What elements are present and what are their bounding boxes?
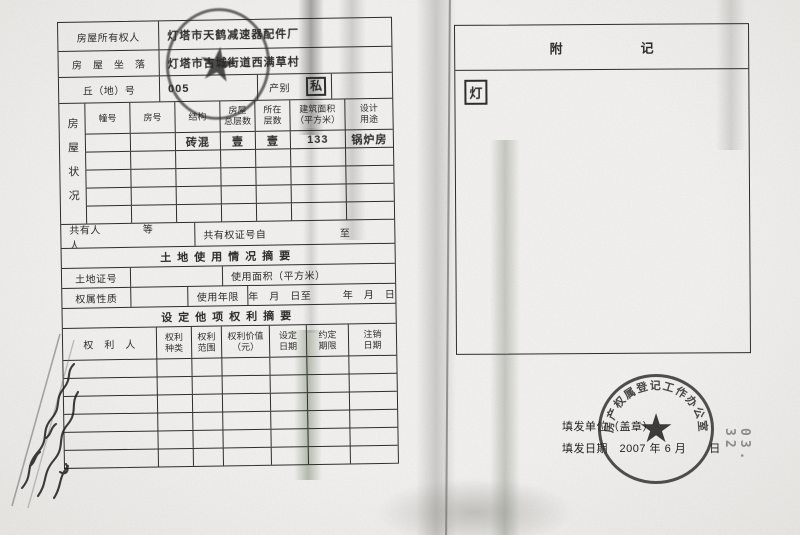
empty-cell	[331, 73, 392, 99]
empty-cell	[307, 374, 349, 392]
empty-cell	[222, 394, 270, 412]
remark-character-stamp: 灯	[464, 80, 487, 105]
empty-cell	[255, 149, 290, 167]
empty-cell	[157, 431, 192, 449]
plot-label: 丘（地）号	[59, 76, 159, 103]
empty-cell	[131, 187, 176, 205]
co-owner-right: 共有权证号自 至	[194, 220, 394, 246]
empty-cell	[85, 152, 130, 170]
seal-arc-text-svg: 房产权属登记工作办公室	[601, 377, 711, 481]
empty-cell	[345, 166, 393, 184]
cell-total-floors: 壹	[220, 132, 255, 150]
empty-cell	[221, 186, 256, 204]
empty-cell	[270, 429, 307, 447]
tenure-label: 权属性质	[62, 288, 130, 308]
empty-cell	[307, 410, 349, 428]
col-header: 约定 期限	[306, 324, 348, 356]
land-cert-label: 土地证号	[62, 268, 130, 288]
col-header: 幢号	[84, 103, 129, 134]
empty-cell	[220, 168, 255, 186]
col-header: 所在 层数	[254, 100, 289, 131]
empty-cell	[255, 167, 290, 185]
col-header: 权利价值 （元）	[221, 326, 269, 358]
empty-cell	[269, 357, 306, 375]
empty-cell	[306, 356, 348, 374]
land-area-label: 使用面积（平方米）	[222, 264, 395, 286]
empty-cell	[307, 428, 349, 446]
empty-cell	[86, 206, 131, 224]
empty-cell	[222, 376, 270, 394]
svg-text:房产权属登记工作办公室: 房产权属登记工作办公室	[602, 379, 711, 434]
empty-cell	[158, 449, 193, 467]
tenure-value	[130, 287, 187, 307]
round-seal-issuing-office: 房产权属登记工作办公室 ★	[598, 374, 714, 484]
empty-cell	[176, 204, 221, 222]
cell	[130, 133, 175, 151]
empty-cell	[220, 150, 255, 168]
empty-cell	[193, 448, 223, 465]
col-header: 设定 日期	[269, 325, 306, 357]
star-icon: ★	[194, 38, 241, 89]
cell-area: 133	[290, 130, 345, 148]
empty-cell	[270, 411, 307, 429]
status-grid: 幢号 房号 结构 房屋 总层数 所在 层数 建筑面积 （平方米） 设计 用途 砖…	[84, 99, 394, 224]
empty-cell	[222, 412, 270, 430]
owner-label: 房屋所有权人	[58, 21, 158, 51]
empty-cell	[345, 148, 393, 166]
empty-cell	[192, 430, 222, 447]
address-label: 房 屋 坐 落	[58, 50, 158, 77]
empty-cell	[271, 447, 308, 465]
empty-cell	[256, 203, 291, 221]
empty-cell	[349, 374, 397, 392]
status-side-label: 房屋状况	[59, 104, 86, 224]
empty-cell	[346, 184, 394, 202]
empty-cell	[290, 148, 345, 166]
empty-cell	[130, 169, 175, 187]
empty-cell	[270, 375, 307, 393]
empty-cell	[290, 166, 345, 184]
empty-cell	[175, 150, 220, 168]
empty-cell	[346, 202, 394, 220]
empty-cell	[175, 168, 220, 186]
land-cert-value	[130, 266, 222, 286]
seal-arc-text: 房产权属登记工作办公室	[602, 379, 711, 434]
empty-cell	[191, 358, 221, 375]
empty-cell	[192, 394, 222, 411]
empty-cell	[307, 392, 349, 410]
empty-cell	[85, 170, 130, 188]
empty-cell	[131, 205, 176, 223]
col-header: 权利 种类	[156, 327, 191, 359]
empty-cell	[221, 204, 256, 222]
co-owner-left: 共有人 等 人	[61, 223, 194, 248]
empty-cell	[350, 446, 398, 464]
empty-cell	[192, 412, 222, 429]
category-value-cell: 私	[301, 74, 331, 99]
empty-cell	[270, 393, 307, 411]
col-header: 权利 范围	[191, 326, 221, 357]
col-header: 设计 用途	[344, 99, 392, 130]
rights-header-row: 权 利 人 权利 种类 权利 范围 权利价值 （元） 设定 日期 约定 期限 注…	[63, 323, 396, 360]
cell	[85, 134, 130, 152]
empty-cell	[86, 188, 131, 206]
empty-cell	[291, 202, 346, 220]
cell-structure: 砖混	[175, 132, 220, 150]
term-label: 使用年限	[187, 286, 247, 306]
remarks-title: 附 记	[455, 24, 748, 71]
empty-cell	[291, 184, 346, 202]
col-header: 建筑面积 （平方米）	[289, 99, 344, 130]
col-header: 注销 日期	[348, 324, 396, 356]
empty-cell	[308, 446, 350, 464]
category-value-stamp: 私	[306, 76, 326, 96]
empty-cell	[157, 413, 192, 431]
empty-cell	[349, 410, 397, 428]
empty-cell	[221, 358, 269, 376]
empty-cell	[222, 430, 270, 448]
col-header: 房号	[129, 102, 174, 133]
scan-smudge	[375, 478, 575, 535]
empty-cell	[192, 376, 222, 393]
margin-page-number: 03. 32	[722, 428, 752, 476]
remarks-box: 附 记 灯	[454, 23, 751, 355]
cell-floor: 壹	[255, 131, 290, 149]
handwritten-annotation	[2, 326, 98, 511]
empty-cell	[176, 186, 221, 204]
empty-cell	[349, 392, 397, 410]
empty-cell	[348, 356, 396, 374]
empty-cell	[256, 185, 291, 203]
page-fold-line	[445, 0, 451, 535]
empty-cell	[156, 359, 191, 377]
empty-cell	[157, 377, 192, 395]
empty-cell	[349, 428, 397, 446]
cell-usage: 锅炉房	[345, 130, 393, 148]
term-value: 年 月 日至 年 月 日	[247, 284, 395, 305]
empty-cell	[223, 448, 271, 466]
scanned-property-certificate: 房屋所有权人 灯塔市天鹤减速器配件厂 房 屋 坐 落 灯塔市古城街道西满草村 丘…	[0, 0, 800, 535]
empty-cell	[130, 151, 175, 169]
empty-cell	[157, 395, 192, 413]
